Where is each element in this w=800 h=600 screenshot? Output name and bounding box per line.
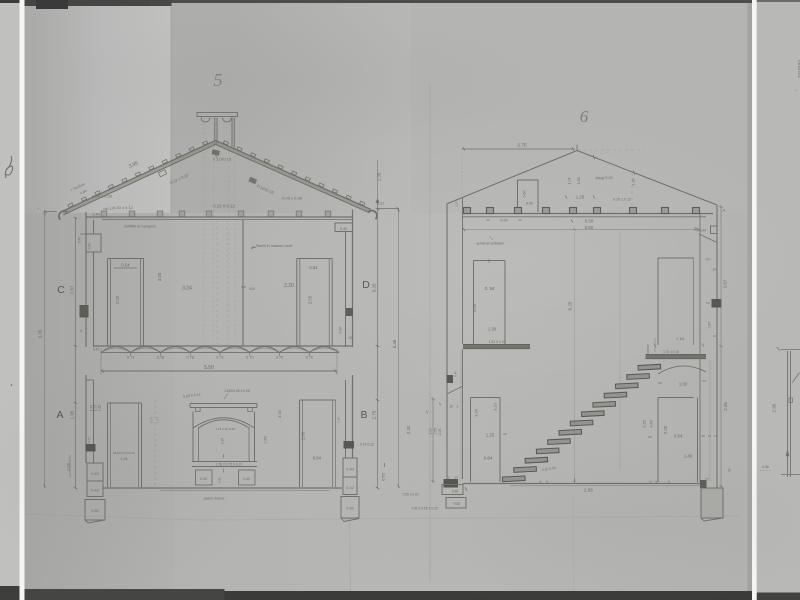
svg-text:6.35: 6.35: [38, 329, 43, 338]
svg-text:2: 2: [457, 405, 459, 409]
svg-text:0.42: 0.42: [93, 348, 99, 352]
svg-text:0.10 0.12: 0.10 0.12: [360, 443, 374, 447]
svg-text:2.20: 2.20: [284, 283, 294, 289]
svg-text:0.40: 0.40: [340, 227, 347, 231]
svg-text:3.00: 3.00: [277, 409, 282, 418]
svg-text:1.00: 1.00: [679, 382, 688, 387]
svg-text:0.40: 0.40: [91, 472, 98, 476]
svg-text:6.30: 6.30: [585, 219, 594, 224]
svg-text:0.78: 0.78: [187, 356, 194, 360]
svg-text:I: I: [795, 89, 799, 90]
svg-text:0.54: 0.54: [309, 265, 318, 270]
svg-text:0.84: 0.84: [313, 456, 322, 461]
svg-text:0.06 x 0.08: 0.06 x 0.08: [282, 196, 303, 201]
svg-text:0.55 x 0.20: 0.55 x 0.20: [403, 493, 419, 497]
svg-text:0.40: 0.40: [78, 237, 82, 243]
svg-text:0.40: 0.40: [200, 477, 207, 481]
svg-text:2.05: 2.05: [438, 429, 442, 436]
svg-text:3.55: 3.55: [150, 417, 154, 424]
svg-text:2.75: 2.75: [517, 143, 527, 149]
svg-text:0.42: 0.42: [346, 486, 353, 490]
svg-text:C: C: [57, 284, 65, 296]
svg-text:1.55: 1.55: [577, 178, 581, 185]
svg-text:27: 27: [705, 478, 709, 482]
svg-text:0.87: 0.87: [708, 322, 712, 329]
svg-text:3.23: 3.23: [494, 403, 498, 410]
svg-text:0.84: 0.84: [484, 456, 493, 461]
svg-text:3.34: 3.34: [475, 409, 479, 416]
svg-text:0.10 x 0.12: 0.10 x 0.12: [113, 205, 134, 210]
svg-text:6.35: 6.35: [392, 339, 397, 348]
svg-text:Soffitto di canigera: Soffitto di canigera: [124, 225, 155, 229]
svg-text:0.60: 0.60: [381, 472, 386, 481]
svg-text:3.24: 3.24: [182, 286, 192, 292]
svg-text:2.95: 2.95: [584, 488, 593, 493]
svg-text:4.60: 4.60: [650, 420, 654, 427]
svg-text:1 10: 1 10: [676, 336, 685, 341]
svg-text:0.17: 0.17: [455, 201, 459, 207]
svg-text:1.50: 1.50: [264, 436, 268, 443]
svg-text:27: 27: [708, 434, 712, 438]
svg-text:1.60: 1.60: [98, 405, 102, 411]
svg-text:26: 26: [449, 405, 453, 409]
svg-text:3.25: 3.25: [643, 420, 647, 427]
svg-text:arriva al solfataio: arriva al solfataio: [476, 242, 503, 246]
svg-text:1.20: 1.20: [632, 179, 636, 186]
svg-text:2.75: 2.75: [372, 410, 377, 419]
svg-text:2.00: 2.00: [472, 303, 477, 312]
svg-text:1.78 0.30 0.35: 1.78 0.30 0.35: [215, 427, 235, 431]
svg-text:16: 16: [446, 476, 450, 480]
svg-text:piano fuoco: piano fuoco: [203, 496, 225, 501]
svg-text:0.06 x 0.08: 0.06 x 0.08: [92, 194, 113, 199]
svg-text:0.60: 0.60: [500, 219, 507, 223]
svg-text:1.40 X 0.65 X 0.20: 1.40 X 0.65 X 0.20: [411, 507, 438, 511]
svg-text:13: 13: [713, 334, 717, 338]
svg-text:0.87: 0.87: [339, 327, 343, 334]
svg-text:1.56 X 0.75 X 0.15: 1.56 X 0.75 X 0.15: [216, 462, 243, 466]
svg-text:0.36: 0.36: [762, 465, 769, 469]
svg-text:1.32 x 0.15: 1.32 x 0.15: [663, 350, 679, 354]
svg-text:0.40: 0.40: [346, 468, 353, 472]
svg-text:2.20: 2.20: [429, 428, 433, 435]
svg-text:1.40: 1.40: [337, 417, 341, 423]
svg-text:0.84: 0.84: [674, 434, 683, 439]
svg-text:0.17: 0.17: [87, 437, 91, 443]
svg-text:2.95: 2.95: [772, 403, 777, 412]
svg-text:3.00: 3.00: [157, 272, 162, 281]
svg-text:-27-: -27-: [705, 258, 712, 262]
svg-text:26: 26: [79, 329, 83, 333]
svg-text:D: D: [362, 279, 370, 291]
svg-text:5.50: 5.50: [204, 365, 214, 371]
svg-text:0.71: 0.71: [127, 356, 134, 360]
svg-text:0.40: 0.40: [88, 243, 92, 250]
svg-text:0.71: 0.71: [216, 356, 223, 360]
svg-text:2.65: 2.65: [434, 428, 438, 435]
svg-text:B: B: [360, 409, 367, 421]
svg-text:0.70: 0.70: [306, 356, 313, 360]
svg-text:Pareti in mattoni vuoti: Pareti in mattoni vuoti: [256, 244, 293, 248]
svg-text:0.60: 0.60: [523, 191, 527, 198]
svg-text:0.50: 0.50: [526, 202, 533, 206]
svg-text:0.50: 0.50: [91, 509, 98, 513]
svg-text:5: 5: [214, 70, 223, 90]
svg-text:2.00: 2.00: [308, 295, 313, 304]
svg-text:1.25: 1.25: [486, 433, 495, 438]
svg-text:2.87: 2.87: [723, 279, 728, 288]
svg-text:A: A: [56, 409, 63, 421]
svg-text:1.52 X 0.15: 1.52 X 0.15: [489, 340, 506, 344]
svg-text:16: 16: [701, 434, 705, 438]
svg-text:1.40: 1.40: [92, 213, 99, 217]
svg-text:2.00: 2.00: [115, 295, 120, 304]
svg-text:2.95: 2.95: [723, 402, 728, 411]
svg-text:0.54: 0.54: [121, 263, 130, 268]
svg-text:1 30: 1 30: [488, 327, 497, 332]
svg-text:0.10 X 0 12: 0.10 X 0 12: [213, 204, 235, 209]
svg-text:24: 24: [454, 476, 458, 480]
svg-text:0.50: 0.50: [454, 502, 461, 506]
svg-text:0.82: 0.82: [218, 477, 222, 483]
svg-text:0.70: 0.70: [246, 356, 253, 360]
svg-text:1.25: 1.25: [576, 195, 585, 200]
svg-text:2.00: 2.00: [663, 425, 668, 434]
svg-text:1.95: 1.95: [70, 410, 75, 419]
svg-text:0.04: 0.04: [249, 287, 255, 291]
svg-text:0. 94: 0. 94: [485, 286, 495, 291]
svg-text:3.20: 3.20: [372, 283, 377, 292]
svg-text:6.25: 6.25: [568, 301, 573, 310]
svg-text:0.10 1.0 12: 0.10 1.0 12: [613, 198, 631, 202]
svg-text:26: 26: [349, 336, 353, 340]
svg-text:0.40: 0.40: [454, 371, 458, 377]
svg-text:0.42: 0.42: [91, 489, 98, 493]
svg-text:-13: -13: [711, 268, 716, 272]
svg-text:1.40: 1.40: [684, 454, 693, 459]
svg-text:2.00: 2.00: [301, 431, 306, 440]
svg-text:1.60X0.55 x 0.06: 1.60X0.55 x 0.06: [224, 389, 250, 393]
svg-text:0.12X0.15: 0.12X0.15: [213, 157, 232, 162]
svg-text:A: A: [722, 208, 725, 213]
svg-text:0.40: 0.40: [700, 229, 707, 233]
svg-text:3.24: 3.24: [156, 417, 160, 424]
svg-text:(seg) 0.28: (seg) 0.28: [595, 176, 613, 180]
svg-text:5.50: 5.50: [585, 225, 594, 230]
svg-text:0.65: 0.65: [452, 490, 459, 494]
svg-text:30: 30: [728, 468, 732, 472]
svg-text:0.50: 0.50: [346, 507, 353, 511]
svg-text:0.40: 0.40: [243, 477, 250, 481]
svg-text:2.87: 2.87: [70, 285, 75, 294]
svg-text:1.94: 1.94: [121, 457, 128, 461]
svg-text:1.05: 1.05: [221, 438, 225, 444]
svg-text:MURO 0.17x0.45: MURO 0.17x0.45: [113, 451, 135, 455]
svg-text:2.30: 2.30: [406, 425, 411, 434]
svg-text:1.24: 1.24: [568, 178, 572, 185]
svg-text:6: 6: [580, 107, 589, 126]
svg-text:0.70: 0.70: [276, 356, 283, 360]
svg-text:0.78: 0.78: [157, 356, 164, 360]
svg-text:0.17: 0.17: [106, 207, 113, 211]
